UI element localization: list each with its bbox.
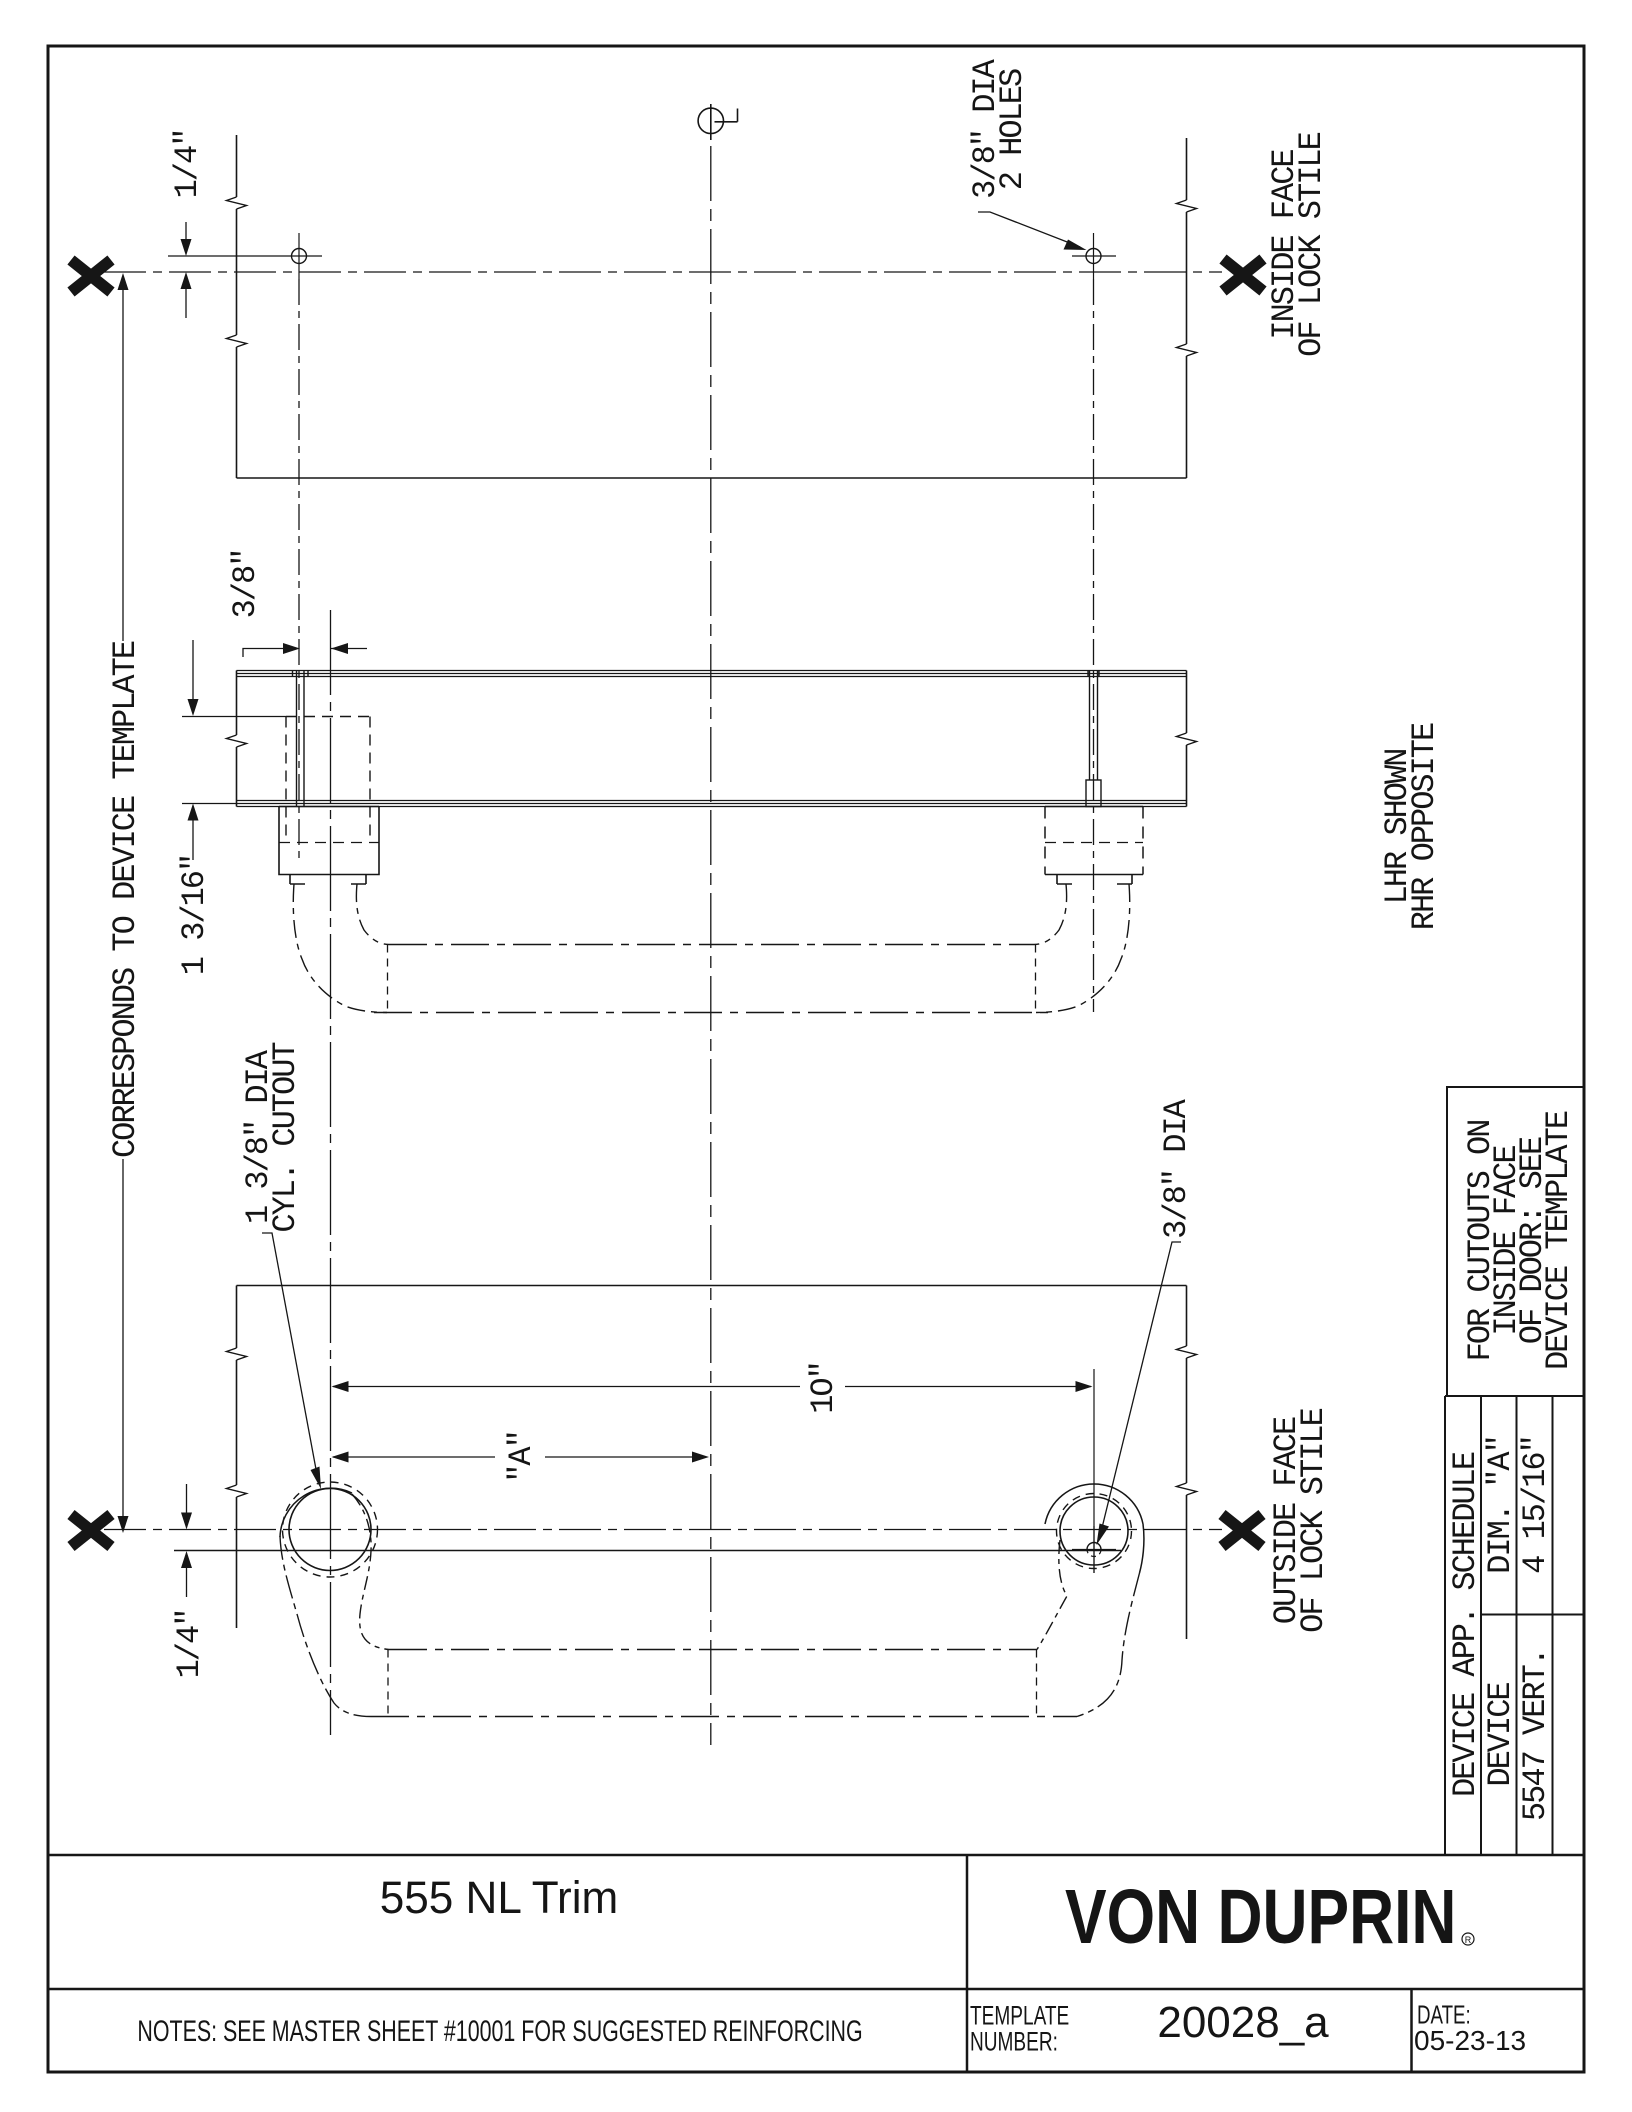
svg-text:3/8": 3/8": [227, 550, 264, 619]
svg-text:20028_a: 20028_a: [1157, 1998, 1329, 2047]
svg-text:4 15/16": 4 15/16": [1517, 1436, 1554, 1574]
svg-text:555 NL Trim: 555 NL Trim: [380, 1874, 619, 1923]
svg-text:CORRESPONDS TO DEVICE TEMPLATE: CORRESPONDS TO DEVICE TEMPLATE: [107, 641, 144, 1158]
svg-text:NUMBER:: NUMBER:: [970, 2026, 1058, 2056]
svg-text:CYL. CUTOUT: CYL. CUTOUT: [267, 1043, 304, 1233]
svg-text:2 HOLES: 2 HOLES: [994, 69, 1031, 190]
svg-text:DIM. "A": DIM. "A": [1482, 1436, 1519, 1574]
svg-text:05-23-13: 05-23-13: [1414, 2025, 1526, 2056]
svg-text:1/4": 1/4": [169, 130, 206, 199]
svg-text:3/8" DIA: 3/8" DIA: [1158, 1098, 1195, 1238]
svg-text:DEVICE APP. SCHEDULE: DEVICE APP. SCHEDULE: [1447, 1452, 1484, 1797]
svg-text:VON DUPRIN: VON DUPRIN: [1065, 1874, 1456, 1960]
svg-text:R: R: [1465, 1935, 1472, 1945]
svg-text:OF LOCK STILE: OF LOCK STILE: [1295, 1408, 1332, 1632]
svg-text:"A": "A": [503, 1431, 540, 1483]
svg-text:NOTES: SEE MASTER SHEET #10001: NOTES: SEE MASTER SHEET #10001 FOR SUGGE…: [137, 2016, 862, 2048]
svg-text:5547 VERT.: 5547 VERT.: [1517, 1649, 1554, 1821]
svg-text:1O": 1O": [805, 1362, 842, 1414]
svg-text:OF LOCK STILE: OF LOCK STILE: [1293, 132, 1330, 356]
svg-text:RHR OPPOSITE: RHR OPPOSITE: [1406, 723, 1443, 930]
svg-text:1 3/16": 1 3/16": [176, 855, 213, 975]
svg-text:DEVICE: DEVICE: [1482, 1683, 1519, 1787]
svg-text:DEVICE TEMPLATE: DEVICE TEMPLATE: [1540, 1111, 1577, 1370]
svg-text:1/4": 1/4": [171, 1610, 208, 1679]
